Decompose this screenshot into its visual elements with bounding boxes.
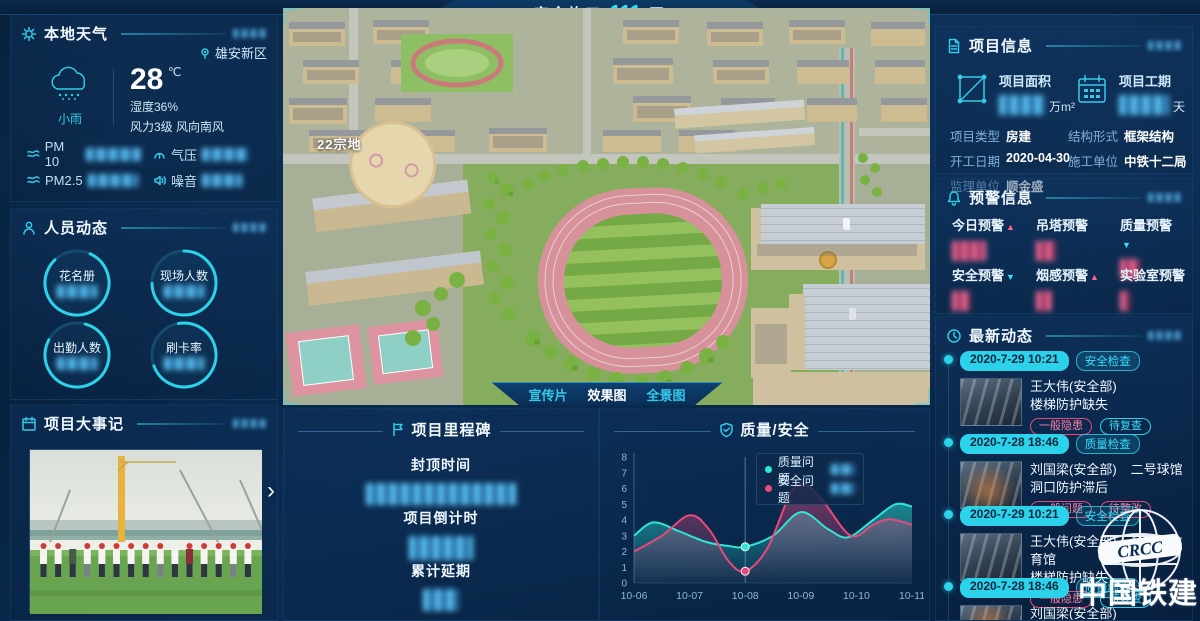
header-line [1046, 197, 1141, 199]
entry-date-badge: 2020-7-28 18:46 [960, 578, 1069, 598]
trend-up-icon: ▲ [1006, 222, 1015, 232]
svg-text:10-08: 10-08 [732, 590, 759, 602]
field-label: 开工日期 [950, 151, 1000, 170]
redacted-value [1119, 95, 1169, 115]
svg-text:10-09: 10-09 [787, 590, 814, 602]
header-deco [233, 223, 267, 232]
entry-tag: 待复查 [1100, 418, 1151, 435]
tab-panorama[interactable]: 全景图 [647, 385, 686, 404]
entry-location: 二号球馆 [1131, 462, 1183, 477]
header-deco [1148, 41, 1182, 50]
header-deco [233, 29, 267, 38]
area-icon [954, 71, 990, 107]
stat-label: 项目面积 [999, 71, 1075, 90]
warnings-panel: 预警信息 今日预警▲ 吊塔预警 质量预警▼ 安全预警▼ 烟感预警▲ 实验室预警 [935, 178, 1193, 314]
milestone-title: 项目里程碑 [412, 419, 492, 440]
header-deco [1148, 193, 1182, 202]
timeline-dot-icon [944, 510, 953, 519]
entry-person: 王大伟(安全部) [1030, 534, 1117, 549]
personnel-panel: 人员动态 花名册 现场人数 出勤人数 刷卡率 [10, 208, 278, 400]
entry-date-badge: 2020-7-29 10:21 [960, 506, 1069, 526]
legend-dot-quality [765, 466, 772, 473]
redacted-value [1036, 241, 1056, 261]
warning-label: 安全预警 [952, 268, 1004, 283]
redacted-value [423, 589, 459, 611]
field-label: 结构形式 [1068, 126, 1118, 145]
field-label: 施工单位 [1068, 151, 1118, 170]
trend-up-icon: ▲ [1090, 272, 1099, 282]
entry-date-badge: 2020-7-29 10:21 [960, 351, 1069, 371]
warnings-title: 预警信息 [969, 187, 1033, 208]
field-value: 房建 [1006, 126, 1031, 145]
header-wing [500, 431, 585, 432]
quality-safety-panel: 质量/安全 01234567810-0610-0710-0810-0910-10… [599, 408, 930, 621]
header-deco [1148, 331, 1182, 340]
field-label: 项目类型 [950, 126, 1000, 145]
redacted-value [202, 174, 242, 187]
clock-icon [946, 328, 962, 344]
project-info-title: 项目信息 [969, 35, 1033, 56]
svg-text:1: 1 [621, 563, 627, 574]
svg-text:5: 5 [621, 500, 627, 511]
pin-icon [199, 47, 211, 59]
redacted-value [164, 285, 204, 298]
ring-roster: 花名册 [39, 245, 115, 321]
entry-thumbnail[interactable] [960, 605, 1022, 621]
wind-label: 风力3级 风向南风 [130, 118, 224, 135]
ring-label: 花名册 [39, 267, 115, 284]
entry-date-badge: 2020-7-28 18:46 [960, 434, 1069, 454]
dust-icon [27, 148, 40, 161]
trend-down-icon: ▼ [1006, 272, 1015, 282]
svg-text:0: 0 [621, 579, 627, 590]
warning-label: 实验室预警 [1120, 268, 1185, 283]
redacted-value [88, 174, 138, 187]
entry-thumbnail[interactable] [960, 461, 1022, 509]
header-wing [818, 431, 915, 432]
schedule-calendar-icon [1074, 71, 1110, 107]
project-events-panel: 项目大事记 › [10, 404, 278, 621]
entry-category-badge: 安全检查 [1076, 351, 1140, 371]
stat-unit: 天 [1173, 98, 1185, 115]
svg-text:4: 4 [621, 516, 627, 527]
entry-person: 刘国梁(安全部) [1030, 462, 1117, 477]
tab-promo-video[interactable]: 宣传片 [528, 385, 567, 404]
update-entry[interactable]: 2020-7-29 10:21 安全检查 王大伟(安全部) 楼梯防护缺失 一般隐… [942, 351, 1192, 435]
redacted-value [952, 241, 986, 261]
svg-text:10-10: 10-10 [843, 590, 870, 602]
svg-text:10-06: 10-06 [621, 590, 648, 602]
redacted-value [164, 357, 204, 370]
redacted-value [409, 536, 473, 560]
redacted-value [999, 95, 1045, 115]
weather-condition: 小雨 [27, 110, 113, 127]
header-line [137, 423, 226, 425]
bell-icon [946, 190, 962, 206]
pressure-icon [153, 148, 166, 161]
redacted-value [831, 464, 855, 475]
ring-attendance: 出勤人数 [39, 317, 115, 393]
update-entry[interactable]: 2020-7-28 18:46 质量检查 刘国梁(安全部) [942, 578, 1192, 621]
temperature-unit: ℃ [168, 65, 181, 79]
redacted-value [952, 291, 970, 311]
quality-safety-title: 质量/安全 [740, 419, 809, 440]
redacted-value [366, 483, 516, 505]
milestone-label: 项目倒计时 [284, 508, 598, 528]
svg-text:7: 7 [621, 468, 627, 479]
person-icon [21, 220, 37, 236]
dust-icon [27, 174, 40, 187]
site-parcel-label: 22宗地 [317, 134, 361, 153]
stat-label: 项目工期 [1119, 71, 1185, 90]
updates-panel: 最新动态 2020-7-29 10:21 安全检查 王大伟(安全部) 楼梯防护缺… [935, 316, 1193, 621]
entry-tag: 一般隐患 [1030, 418, 1092, 435]
metric-label: PM2.5 [45, 173, 83, 188]
milestone-label: 封顶时间 [284, 455, 598, 475]
redacted-value [86, 148, 141, 161]
milestone-panel: 项目里程碑 封顶时间 项目倒计时 累计延期 [283, 408, 599, 621]
timeline-dot-icon [944, 582, 953, 591]
entry-person: 刘国梁(安全部) [1030, 606, 1117, 621]
header-wing [614, 431, 711, 432]
stat-unit: 万m² [1049, 98, 1075, 115]
temperature-value: 28 [130, 63, 163, 96]
header-line [121, 227, 226, 229]
entry-issue: 洞口防护滞后 [1030, 479, 1183, 497]
event-photo [29, 449, 261, 613]
ring-onsite: 现场人数 [146, 245, 222, 321]
header-line [121, 33, 226, 35]
corner-bracket [914, 8, 930, 24]
entry-category-badge: 安全检查 [1076, 506, 1140, 526]
site-render-view: 22宗地 宣传片 效果图 全景图 [283, 8, 930, 405]
entry-thumbnail[interactable] [960, 378, 1022, 426]
header-line [1046, 45, 1141, 47]
warning-label: 质量预警 [1120, 218, 1172, 233]
corner-bracket [283, 8, 299, 24]
metric-label: 噪音 [171, 171, 197, 190]
warning-label: 烟感预警 [1036, 268, 1088, 283]
entry-issue: 楼梯防护缺失 [1030, 396, 1151, 414]
trend-down-icon: ▼ [1122, 240, 1131, 250]
svg-text:6: 6 [621, 484, 627, 495]
events-title: 项目大事记 [44, 413, 124, 434]
entry-category-badge: 质量检查 [1076, 578, 1140, 598]
metric-label: 气压 [171, 145, 197, 164]
noise-icon [153, 174, 166, 187]
svg-text:8: 8 [621, 453, 627, 464]
milestone-label: 累计延期 [284, 561, 598, 581]
field-value: 框架结构 [1124, 126, 1174, 145]
legend-safety-label: 安全问题 [778, 472, 825, 506]
header-wing [298, 431, 383, 432]
flag-icon [391, 422, 406, 437]
corner-bracket [283, 389, 299, 405]
weather-panel: 本地天气 雄安新区 小雨 28 ℃ 湿度36% 风力3级 风向南风 [10, 14, 278, 202]
timeline-dot-icon [944, 438, 953, 447]
calendar-icon [21, 416, 37, 432]
ring-swipe-rate: 刷卡率 [146, 317, 222, 393]
redacted-value [1036, 291, 1052, 311]
gear-icon [21, 26, 37, 42]
warning-label: 今日预警 [952, 218, 1004, 233]
redacted-value [831, 483, 855, 494]
field-value: 2020-04-30 [1006, 151, 1070, 170]
redacted-value [57, 357, 97, 370]
header-deco [233, 419, 267, 428]
ring-label: 刷卡率 [146, 339, 222, 356]
project-info-panel: 项目信息 项目面积 万m² 项目工期 天 [935, 26, 1193, 174]
humidity-label: 湿度36% [130, 98, 224, 115]
quality-safety-chart: 01234567810-0610-0710-0810-0910-1010-11 … [606, 443, 924, 617]
entry-category-badge: 质量检查 [1076, 434, 1140, 454]
view-tabbar: 宣传片 效果图 全景图 [491, 382, 723, 405]
ring-label: 现场人数 [146, 267, 222, 284]
carousel-next-arrow[interactable]: › [267, 477, 275, 505]
ring-label: 出勤人数 [39, 339, 115, 356]
corner-bracket [914, 389, 930, 405]
location-label: 雄安新区 [215, 43, 267, 62]
svg-text:10-11: 10-11 [899, 590, 924, 602]
legend-dot-safety [765, 485, 772, 492]
timeline-dot-icon [944, 355, 953, 364]
svg-text:2: 2 [621, 547, 627, 558]
header-line [1046, 335, 1141, 337]
shield-check-icon [719, 422, 734, 438]
redacted-value [57, 285, 97, 298]
svg-text:3: 3 [621, 531, 627, 542]
rain-cloud-icon [44, 65, 96, 103]
warning-label: 吊塔预警 [1036, 218, 1088, 233]
location-chip: 雄安新区 [199, 43, 267, 62]
updates-title: 最新动态 [969, 325, 1033, 346]
chart-tooltip: 质量问题 安全问题 [756, 453, 864, 505]
redacted-value [1120, 291, 1130, 311]
entry-thumbnail[interactable] [960, 533, 1022, 581]
redacted-value [202, 148, 248, 161]
entry-person: 王大伟(安全部) [1030, 379, 1117, 394]
personnel-title: 人员动态 [44, 217, 108, 238]
svg-text:10-07: 10-07 [676, 590, 703, 602]
document-icon [946, 38, 962, 54]
tab-render-image[interactable]: 效果图 [587, 385, 626, 404]
weather-title: 本地天气 [44, 23, 108, 44]
field-value: 中铁十二局 [1124, 151, 1187, 170]
metric-label: PM 10 [45, 139, 82, 169]
